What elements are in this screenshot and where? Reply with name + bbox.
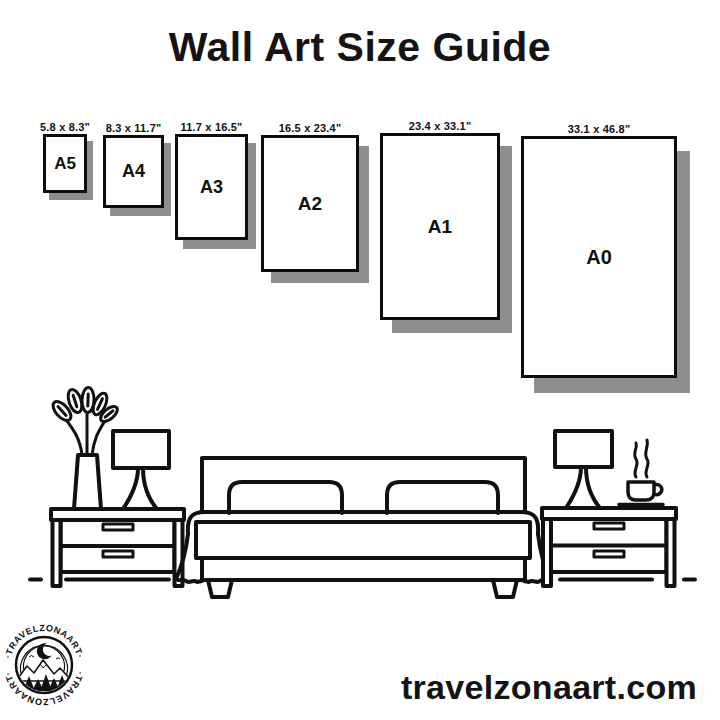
size-guide-poster: Wall Art Size Guide 5.8 x 8.3" A5 8.3 x … [0, 0, 720, 720]
pillow-right [387, 482, 498, 513]
frame-a5-size-label: A5 [54, 154, 76, 174]
bed-leg-left [208, 580, 232, 597]
nightstand-left [51, 509, 184, 586]
pillow-left [229, 482, 342, 513]
frame-a4-dimensions: 8.3 x 11.7" [106, 122, 162, 134]
lamp-shade [555, 431, 612, 467]
bed [176, 458, 550, 597]
frame-a1: 23.4 x 33.1" A1 [380, 133, 500, 320]
duvet [196, 522, 530, 558]
table-lamp-right [555, 431, 612, 508]
frame-a2-size-label: A2 [298, 193, 322, 215]
frame-a1-size-label: A1 [428, 216, 452, 238]
lamp-stem [566, 467, 600, 508]
vase [74, 455, 101, 509]
frame-a3-dimensions: 11.7 x 16.5" [180, 121, 242, 133]
frame-a4-size-label: A4 [122, 161, 145, 182]
website-text: travelzonaart.com [384, 668, 714, 707]
nightstand-right [542, 508, 676, 586]
frame-a0-dimensions: 33.1 x 46.8" [568, 123, 631, 135]
table-lamp-left [113, 431, 169, 509]
bed-leg-right [493, 580, 517, 597]
frame-a3-size-label: A3 [200, 177, 223, 198]
frame-a2-dimensions: 16.5 x 23.4" [279, 122, 342, 134]
frame-a5: 5.8 x 8.3" A5 [43, 134, 87, 193]
potted-plant [50, 387, 120, 509]
steam-icon [635, 440, 649, 477]
cup-body [628, 482, 654, 500]
lamp-shade [113, 431, 169, 468]
frame-a4: 8.3 x 11.7" A4 [103, 135, 164, 208]
frame-a5-dimensions: 5.8 x 8.3" [40, 121, 90, 133]
frame-a1-dimensions: 23.4 x 33.1" [409, 120, 472, 132]
frame-a2: 16.5 x 23.4" A2 [261, 135, 359, 272]
bed-base [202, 558, 525, 580]
furniture-illustration [0, 385, 720, 600]
lamp-stem [123, 468, 157, 509]
plant-leaves [50, 387, 120, 424]
frame-a0-size-label: A0 [586, 246, 612, 269]
page-title: Wall Art Size Guide [0, 24, 720, 71]
frame-a3: 11.7 x 16.5" A3 [175, 134, 248, 240]
coffee-cup [619, 440, 663, 505]
frame-a0: 33.1 x 46.8" A0 [521, 136, 677, 378]
brand-logo: ·TRAVELZONAART· ·TRAVELZONAART· [0, 617, 94, 713]
